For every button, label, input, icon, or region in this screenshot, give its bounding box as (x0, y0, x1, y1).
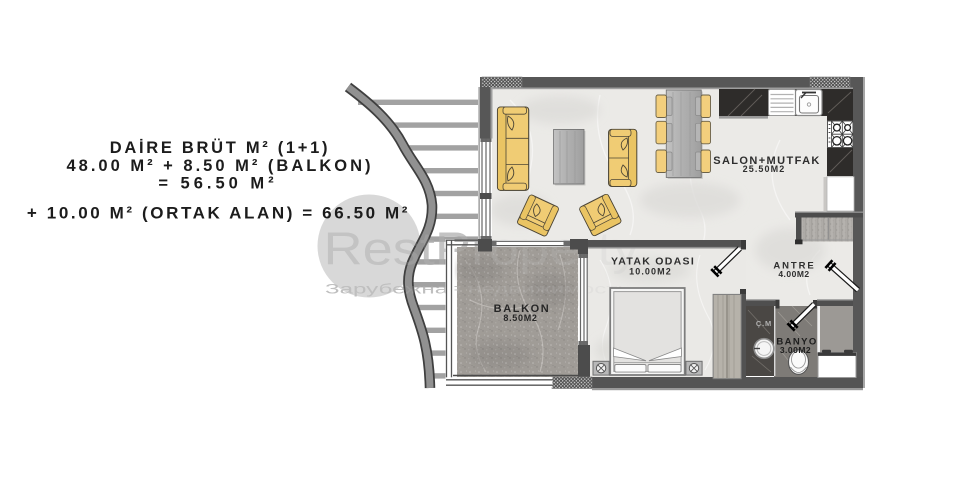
svg-text:Ç.M: Ç.M (756, 319, 772, 328)
svg-text:= 56.50 M²: = 56.50 M² (158, 174, 277, 192)
svg-text:10.00M2: 10.00M2 (629, 266, 672, 276)
svg-text:48.00 M² + 8.50 M² (BALKON): 48.00 M² + 8.50 M² (BALKON) (66, 157, 373, 175)
svg-text:8.50M2: 8.50M2 (503, 313, 537, 323)
svg-text:4.00M2: 4.00M2 (778, 269, 809, 279)
svg-text:25.50M2: 25.50M2 (743, 164, 786, 174)
svg-text:3.00M2: 3.00M2 (780, 345, 811, 355)
svg-text:DAİRE BRÜT M² (1+1): DAİRE BRÜT M² (1+1) (110, 138, 330, 157)
svg-text:+ 10.00 M² (ORTAK ALAN) = 66.5: + 10.00 M² (ORTAK ALAN) = 66.50 M² (27, 203, 410, 222)
